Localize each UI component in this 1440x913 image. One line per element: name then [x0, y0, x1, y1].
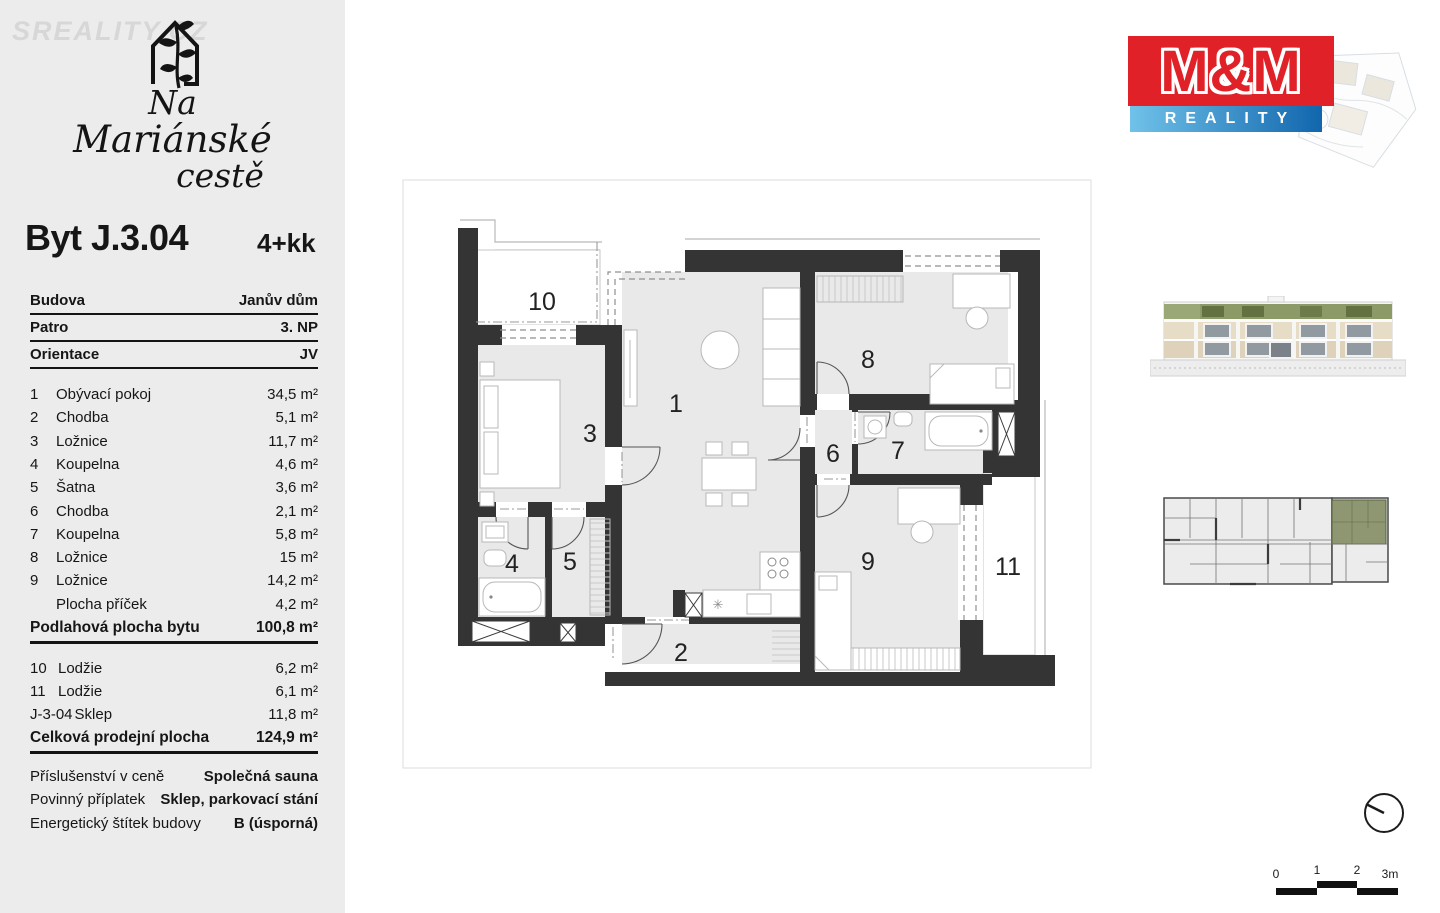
- room-area: 34,5 m²: [267, 386, 318, 403]
- room-label-1: 1: [669, 390, 683, 418]
- nightstand: [480, 492, 494, 506]
- detail-value: Společná sauna: [204, 768, 318, 785]
- chair: [966, 307, 988, 329]
- room-area: 3,6 m²: [275, 479, 318, 496]
- room-row: 8 Ložnice 15 m²: [30, 549, 318, 566]
- room-label-9: 9: [861, 548, 875, 576]
- compass-icon: [1358, 787, 1408, 842]
- info-label: Orientace: [30, 346, 99, 367]
- room-number: 11: [30, 683, 56, 700]
- room-name: Chodba: [56, 503, 275, 520]
- project-logo-line2: Mariánské: [0, 120, 345, 160]
- detail-value: B (úsporná): [234, 815, 318, 832]
- hall-shelves: [772, 626, 800, 662]
- room-row: 4 Koupelna 4,6 m²: [30, 456, 318, 473]
- room-number: 8: [30, 549, 56, 566]
- room-name: Obývací pokoj: [56, 386, 267, 403]
- kitchen-counter: [760, 552, 800, 590]
- scale-label-0: 0: [1273, 867, 1280, 881]
- room-area: 6,2 m²: [275, 660, 318, 677]
- room-name: Ložnice: [56, 572, 267, 589]
- room-label-2: 2: [674, 639, 688, 667]
- room-name: Ložnice: [56, 549, 280, 566]
- room-name: Plocha příček: [56, 596, 275, 613]
- closet-shelves: [590, 519, 610, 615]
- detail-label: Příslušenství v ceně: [30, 768, 164, 785]
- detail-label: Povinný příplatek: [30, 791, 145, 808]
- room-area: 5,1 m²: [275, 409, 318, 426]
- agency-logo: M&M REALITY: [1128, 36, 1334, 132]
- room-label-6: 6: [826, 440, 840, 468]
- room-name: Šatna: [56, 479, 275, 496]
- room-label-8: 8: [861, 346, 875, 374]
- room-name: Lodžie: [58, 660, 275, 677]
- desk: [953, 274, 1010, 308]
- total-value: 100,8 m²: [256, 619, 318, 641]
- room-number: 2: [30, 409, 56, 426]
- kitchen-sink: [747, 594, 771, 614]
- floor-area-total: Podlahová plocha bytu 100,8 m²: [30, 619, 318, 644]
- agency-logo-mark: M&M: [1128, 36, 1334, 106]
- room-area: 11,8 m²: [268, 706, 318, 723]
- coffee-table: [701, 331, 739, 369]
- floor-overview: [1160, 488, 1400, 603]
- info-row-budova: Budova Janův dům: [30, 292, 318, 315]
- room-label-10: 10: [528, 288, 556, 316]
- room-number: J-3-04: [30, 706, 73, 723]
- project-logo: Na Mariánské cestě: [0, 86, 345, 192]
- room-number: 5: [30, 479, 56, 496]
- room-row: Plocha příček 4,2 m²: [30, 596, 318, 613]
- pillow: [819, 576, 837, 590]
- room-number: [30, 596, 56, 613]
- scale-label-2: 2: [1354, 863, 1361, 877]
- extra-row: 11 Lodžie 6,1 m²: [30, 683, 318, 700]
- wardrobe: [817, 276, 903, 302]
- toilet: [484, 550, 506, 566]
- room-area: 6,1 m²: [275, 683, 318, 700]
- info-panel: SREALITY.CZ Na Mariánské cestě Byt J.3.0…: [0, 0, 345, 913]
- room-area: 2,1 m²: [275, 503, 318, 520]
- chair: [911, 521, 933, 543]
- room-name: Ložnice: [56, 433, 268, 450]
- room-row: 3 Ložnice 11,7 m²: [30, 433, 318, 450]
- selling-area-total: Celková prodejní plocha 124,9 m²: [30, 729, 318, 754]
- pillow: [996, 368, 1010, 388]
- extra-row: 10 Lodžie 6,2 m²: [30, 660, 318, 677]
- info-label: Budova: [30, 292, 85, 313]
- nightstand: [480, 362, 494, 376]
- toilet: [894, 412, 912, 426]
- total-label: Podlahová plocha bytu: [30, 619, 200, 641]
- property-factsheet: { "watermark": "SREALITY.CZ", "brand": {…: [0, 0, 1440, 913]
- room-area: 15 m²: [280, 549, 318, 566]
- detail-value: Sklep, parkovací stání: [160, 791, 318, 808]
- chair: [706, 442, 722, 455]
- washing-machine: [864, 416, 886, 438]
- detail-row: Energetický štítek budovy B (úsporná): [30, 815, 318, 832]
- room-name: Chodba: [56, 409, 275, 426]
- wardrobe: [851, 648, 960, 670]
- room-row: 1 Obývací pokoj 34,5 m²: [30, 386, 318, 403]
- room-row: 5 Šatna 3,6 m²: [30, 479, 318, 496]
- pillow: [484, 432, 498, 474]
- chair: [732, 493, 748, 506]
- room-number: 3: [30, 433, 56, 450]
- room-name: Koupelna: [56, 456, 275, 473]
- house-plant-icon: [138, 4, 212, 95]
- room-label-4: 4: [505, 550, 519, 578]
- room-name: Koupelna: [56, 526, 275, 543]
- project-logo-line3: cestě: [0, 160, 345, 192]
- unit-title: Byt J.3.04: [25, 217, 188, 259]
- info-value: 3. NP: [280, 319, 318, 340]
- room-label-7: 7: [891, 437, 905, 465]
- agency-logo-bar: REALITY: [1130, 106, 1322, 132]
- room-number: 7: [30, 526, 56, 543]
- room-label-5: 5: [563, 548, 577, 576]
- room-area: 11,7 m²: [268, 433, 318, 450]
- room-row: 2 Chodba 5,1 m²: [30, 409, 318, 426]
- scale-label-1: 1: [1314, 863, 1321, 877]
- info-row-patro: Patro 3. NP: [30, 319, 318, 342]
- extra-row: J-3-04 Sklep 11,8 m²: [30, 706, 318, 723]
- room-row: 7 Koupelna 5,8 m²: [30, 526, 318, 543]
- room-number: 4: [30, 456, 56, 473]
- room-number: 10: [30, 660, 56, 677]
- room-row: 9 Ložnice 14,2 m²: [30, 572, 318, 589]
- room-label-11: 11: [995, 553, 1021, 581]
- room-number: 1: [30, 386, 56, 403]
- agency-name: M&M: [1160, 38, 1302, 105]
- room-row: 6 Chodba 2,1 m²: [30, 503, 318, 520]
- room-number: 6: [30, 503, 56, 520]
- room-name: Lodžie: [58, 683, 275, 700]
- chair: [732, 442, 748, 455]
- dining-table: [702, 458, 756, 490]
- room-label-3: 3: [583, 420, 597, 448]
- project-logo-line1: Na: [0, 86, 345, 120]
- room-area: 4,2 m²: [275, 596, 318, 613]
- scale-bar: 0 1 2 3m: [1266, 860, 1406, 905]
- detail-row: Povinný příplatek Sklep, parkovací stání: [30, 791, 318, 808]
- room-number: 9: [30, 572, 56, 589]
- info-value: JV: [300, 346, 318, 367]
- info-row-orientace: Orientace JV: [30, 346, 318, 369]
- room-area: 14,2 m²: [267, 572, 318, 589]
- floor-plan: ✳ 1 2 3 4 5 6 7 8 9 10 11: [400, 172, 1100, 772]
- scale-label-3m: 3m: [1382, 867, 1399, 881]
- room-area: 5,8 m²: [275, 526, 318, 543]
- desk: [898, 488, 960, 524]
- total-value: 124,9 m²: [256, 729, 318, 751]
- stove-icon: ✳: [713, 597, 724, 612]
- agency-tagline: REALITY: [1156, 110, 1296, 128]
- info-label: Patro: [30, 319, 68, 340]
- chair: [706, 493, 722, 506]
- room-area: 4,6 m²: [275, 456, 318, 473]
- detail-label: Energetický štítek budovy: [30, 815, 201, 832]
- room-name: Sklep: [75, 706, 269, 723]
- building-elevation: [1150, 296, 1406, 393]
- sofa: [763, 288, 800, 406]
- info-value: Janův dům: [239, 292, 318, 313]
- detail-row: Příslušenství v ceně Společná sauna: [30, 768, 318, 785]
- total-label: Celková prodejní plocha: [30, 729, 209, 751]
- pillow: [484, 386, 498, 428]
- unit-layout: 4+kk: [257, 228, 316, 259]
